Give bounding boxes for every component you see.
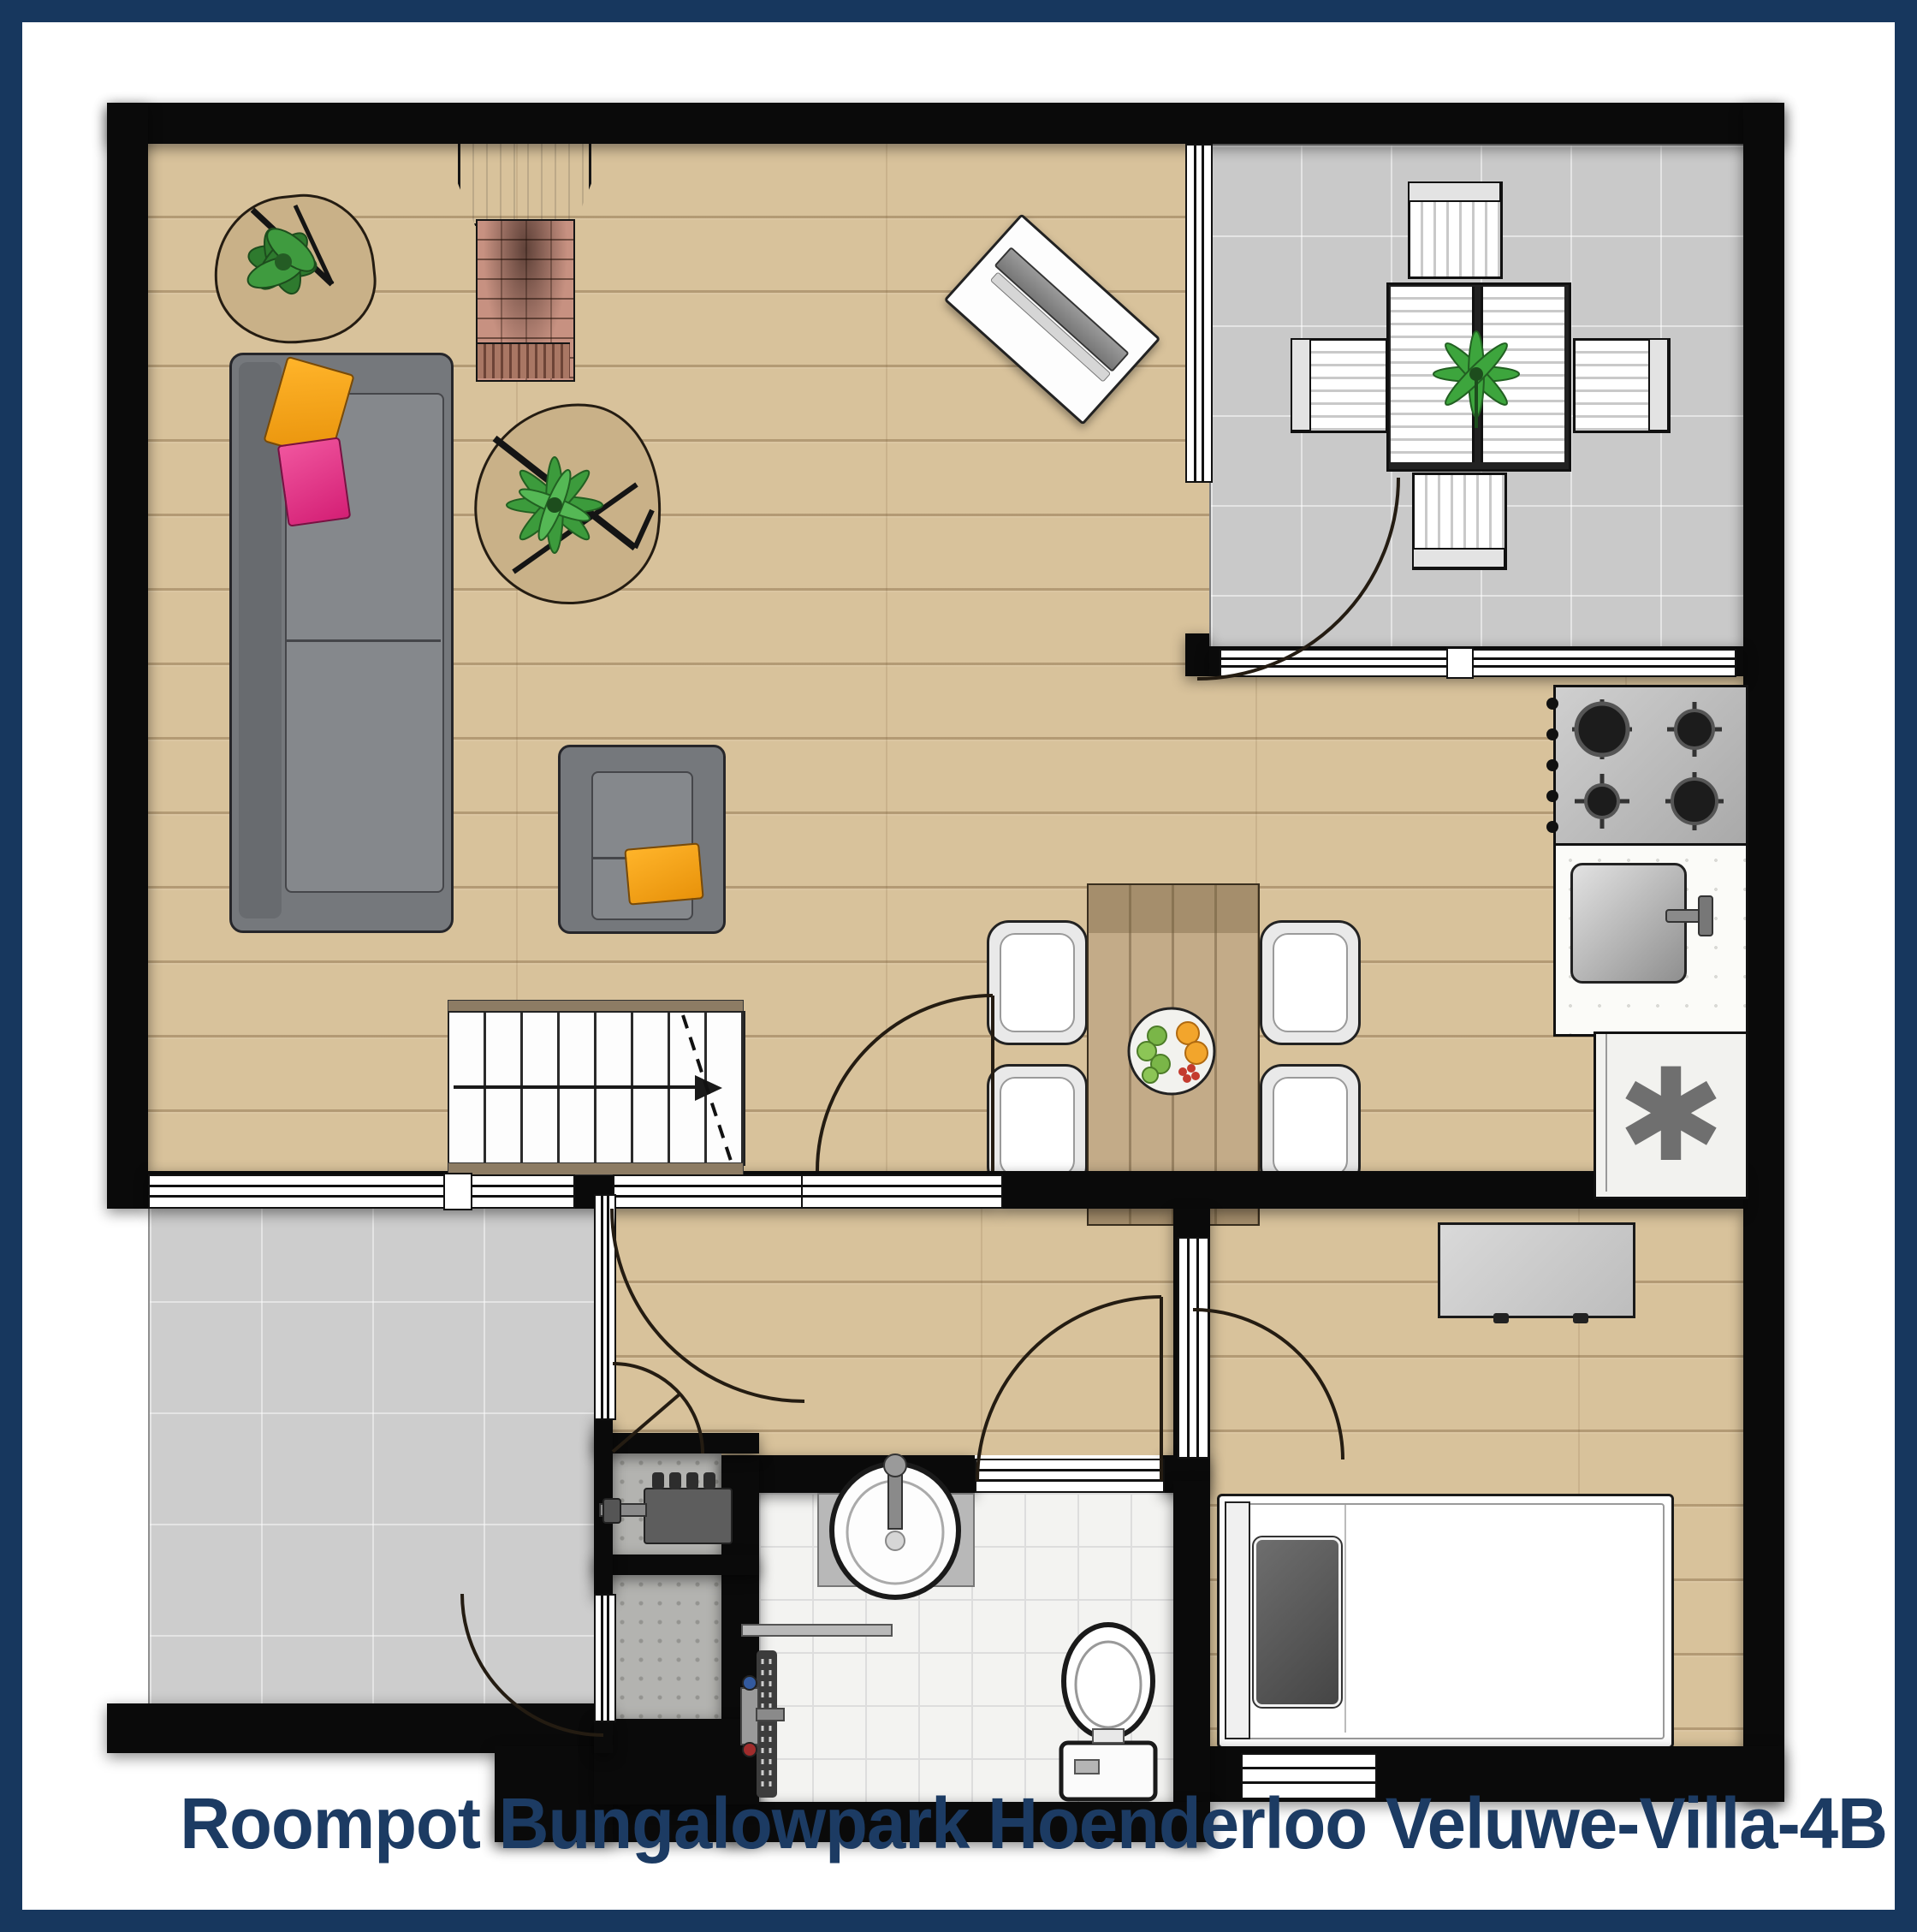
wall-bathroom-top (721, 1455, 975, 1493)
window-terrace-bottom (1220, 649, 1736, 677)
window-post-terrace (1446, 647, 1474, 679)
wall-right (1743, 103, 1784, 1802)
washbasin-counter (817, 1493, 975, 1587)
outdoor-chair-left (1291, 338, 1388, 433)
bed (1217, 1494, 1674, 1749)
sofa (229, 353, 454, 933)
window-post-1 (443, 1173, 472, 1210)
freezer-symbol: ✱ (1617, 1051, 1725, 1180)
dining-chair-seat (1000, 933, 1075, 1032)
table-apron-top (1089, 885, 1258, 933)
sink-faucet-handle (1698, 895, 1713, 936)
stairs-walkline (454, 1085, 697, 1089)
outdoor-table (1386, 282, 1571, 472)
door-threshold-living-hall (801, 1174, 1003, 1209)
door-threshold-bathroom (975, 1459, 1165, 1493)
window-living-south-2 (469, 1174, 575, 1209)
bed-headboard (1225, 1501, 1250, 1739)
dresser-foot-right (1573, 1313, 1588, 1323)
dining-chair-seat (1000, 1077, 1075, 1176)
hallway-floor (613, 1209, 1173, 1455)
wall-closet-top (594, 1433, 759, 1453)
boiler-cap-1 (652, 1472, 664, 1489)
window-patio-hall (594, 1194, 616, 1420)
bed-pillow (1254, 1537, 1341, 1707)
dresser-foot-left (1493, 1313, 1509, 1323)
boiler-cap-3 (686, 1472, 698, 1489)
sofa-pillow-pink (277, 437, 352, 526)
outdoor-table-right-leaf (1481, 287, 1564, 462)
armchair (558, 745, 726, 934)
floor-plan-canvas: ✱ (0, 0, 1917, 1932)
wardrobe-dresser (1438, 1222, 1635, 1318)
outdoor-chair-backrail (1648, 338, 1669, 431)
fireplace-vent (478, 342, 570, 378)
stairs-rail-bottom (448, 1162, 744, 1175)
outdoor-chair-right (1573, 338, 1671, 433)
wall-patio-hall-low (594, 1719, 613, 1753)
window-living-south-1 (148, 1174, 447, 1209)
wall-closet-divider (594, 1555, 759, 1575)
freezer-door-line (1605, 1034, 1607, 1192)
patio-floor (148, 1190, 596, 1703)
window-terrace-left (1185, 144, 1213, 483)
dining-chair-top-left (987, 920, 1088, 1045)
armchair-pillow-orange (624, 842, 703, 905)
outdoor-chair-bottom (1412, 473, 1507, 570)
outdoor-chair-backrail (1291, 338, 1311, 431)
dining-chair-seat (1273, 933, 1348, 1032)
wall-terrace-pier (1185, 633, 1209, 676)
boiler-cap-2 (669, 1472, 681, 1489)
outdoor-table-left-leaf (1391, 287, 1475, 462)
gas-hob (1553, 685, 1748, 848)
vestibule-floor (613, 1575, 721, 1719)
kitchen-sink (1570, 863, 1687, 984)
wall-left (107, 103, 148, 1209)
wall-top (107, 103, 1784, 144)
bed-sheet-line (1344, 1505, 1346, 1733)
sofa-seam (285, 639, 441, 642)
plan-title: Roompot Bungalowpark Hoenderloo Veluwe-V… (180, 1782, 1856, 1865)
door-threshold-vestibule-patio (594, 1594, 616, 1722)
outdoor-chair-backrail (1412, 548, 1505, 568)
outdoor-chair-top (1408, 181, 1503, 279)
outdoor-chair-backrail (1408, 181, 1501, 202)
boiler-valve (602, 1498, 621, 1524)
window-living-south-3 (613, 1174, 804, 1209)
dining-chair-top-right (1260, 920, 1361, 1045)
boiler-unit (644, 1488, 733, 1544)
door-threshold-bedroom (1178, 1237, 1209, 1459)
freezer: ✱ (1594, 1031, 1748, 1199)
dining-chair-seat (1273, 1077, 1348, 1176)
sofa-backrest (239, 362, 282, 918)
boiler-cap-4 (703, 1472, 715, 1489)
